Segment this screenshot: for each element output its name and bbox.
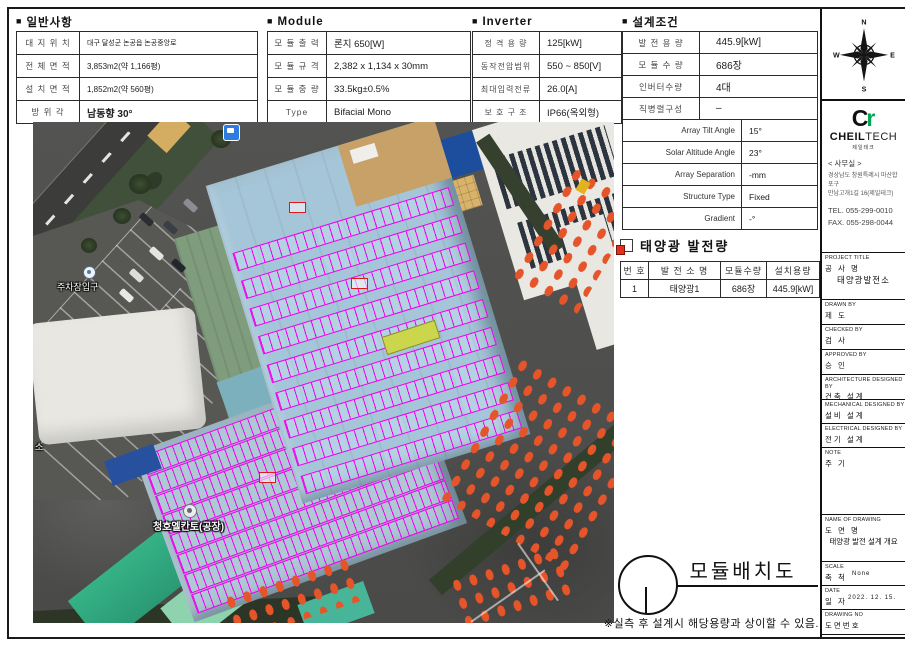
field-value: 남동향 30° bbox=[80, 101, 257, 123]
titleblock-electrical: ELECTRICAL DESIGNED BY전기 설계 bbox=[822, 423, 905, 447]
column-header: 설치용량 bbox=[767, 262, 819, 280]
titleblock-scale: SCALE축 척None bbox=[822, 561, 905, 585]
field-label: 모 듈 중 량 bbox=[268, 78, 327, 100]
roof-label-marker bbox=[259, 472, 276, 483]
table-row: 발 전 용 량445.9[kW] bbox=[623, 32, 817, 54]
table-row: Array Tilt Angle15° bbox=[623, 120, 817, 142]
row-caption-kr: 설비 설계 bbox=[825, 410, 905, 421]
field-value: 33.5kg±0.5% bbox=[327, 78, 470, 100]
table-row: 방 위 각남동향 30° bbox=[17, 101, 257, 123]
office-tel-line: TEL. 055-299-0010 bbox=[828, 205, 900, 217]
compass-w-label: W bbox=[832, 52, 839, 60]
compass-n-label: N bbox=[861, 19, 866, 27]
compass-rose-icon: N S W E bbox=[831, 15, 897, 93]
design-table-en: Array Tilt Angle15° Solar Altitude Angle… bbox=[622, 119, 818, 230]
field-value: 2,382 x 1,134 x 30mm bbox=[327, 55, 470, 77]
place-marker-icon bbox=[183, 504, 197, 518]
column-header: 발 전 소 명 bbox=[649, 262, 721, 280]
table-row: TypeBifacial Mono bbox=[268, 101, 470, 123]
office-fax-line: FAX. 055-298-0044 bbox=[828, 217, 900, 229]
row-caption-kr: 도면번호 bbox=[825, 620, 905, 631]
map-label-edge: 소 bbox=[35, 440, 43, 453]
car bbox=[183, 198, 199, 213]
table-row: 보 호 구 조IP66(옥외형) bbox=[473, 101, 621, 123]
table-row: 모 듈 중 량33.5kg±0.5% bbox=[268, 78, 470, 101]
company-box: Cr CHEILTECH 제일테크 < 사무실 > 경상남도 창원특례시 마산합… bbox=[822, 99, 905, 252]
row-caption-en: APPROVED BY bbox=[825, 352, 905, 359]
drawing-sheet: ■ 일반사항 대 지 위 치대구 달성군 논공읍 논공중앙로 전 체 면 적3,… bbox=[0, 0, 912, 646]
tree bbox=[129, 174, 151, 194]
section-design-header: ■ 설계조건 bbox=[622, 14, 818, 29]
title-block-rows: PROJECT TITLE공 사 명태양광발전소 DRAWN BY제 도 CHE… bbox=[822, 252, 905, 638]
field-label: 정 격 용 량 bbox=[473, 32, 540, 54]
table-row: Gradient-° bbox=[623, 208, 817, 229]
module-table: 모 듈 출 력론지 650[W] 모 듈 규 격2,382 x 1,134 x … bbox=[267, 31, 471, 124]
row-caption-en: ARCHITECTURE DESIGNED BY bbox=[825, 377, 905, 390]
brand-bold: CHEIL bbox=[830, 131, 866, 143]
title-symbol-divider bbox=[645, 587, 647, 613]
row-caption-kr: 공 사 명 bbox=[825, 263, 905, 274]
table-row: 인버터수량4대 bbox=[623, 76, 817, 98]
field-label: Structure Type bbox=[623, 186, 742, 207]
section-inverter: ■ Inverter 정 격 용 량125[kW] 동작전압범위550 ~ 85… bbox=[472, 14, 622, 124]
compass-s-label: S bbox=[861, 85, 866, 93]
sheet-frame: ■ 일반사항 대 지 위 치대구 달성군 논공읍 논공중앙로 전 체 면 적3,… bbox=[7, 7, 905, 639]
table-row: 전 체 면 적3,853m2(약 1,166평) bbox=[17, 55, 257, 78]
section-bullet-icon: ■ bbox=[267, 17, 272, 26]
field-label: 모 듈 출 력 bbox=[268, 32, 327, 54]
field-value: 26.0[A] bbox=[540, 78, 621, 100]
row-caption-kr: 검 사 bbox=[825, 335, 905, 346]
office-header: < 사무실 > bbox=[828, 158, 900, 169]
field-label: 모 듈 규 격 bbox=[268, 55, 327, 77]
footnote: ※실측 후 설계시 해당용량과 상이할 수 있음. bbox=[604, 615, 819, 631]
table-row: Solar Altitude Angle23° bbox=[623, 142, 817, 164]
field-label: 설 치 면 적 bbox=[17, 78, 80, 100]
field-label: 보 호 구 조 bbox=[473, 101, 540, 123]
row-caption-en: PROJECT TITLE bbox=[825, 255, 905, 262]
titleblock-note: NOTE주 기 bbox=[822, 447, 905, 514]
titleblock-checked-by: CHECKED BY검 사 bbox=[822, 324, 905, 349]
field-value: 686장 bbox=[700, 54, 817, 75]
column-header: 모듈수량 bbox=[721, 262, 767, 280]
satellite-layout-map: 주차장입구 청호엘칸토(공장) 소 bbox=[33, 122, 614, 623]
section-inverter-title: Inverter bbox=[482, 16, 532, 28]
office-phone: TEL. 055-299-0010 FAX. 055-298-0044 bbox=[828, 205, 900, 229]
field-value: IP66(옥외형) bbox=[540, 101, 621, 123]
inverter-table: 정 격 용 량125[kW] 동작전압범위550 ~ 850[V] 최대입력전류… bbox=[472, 31, 622, 124]
logo-mark: Cr bbox=[822, 107, 905, 130]
row-caption-en: DRAWING NO bbox=[825, 612, 905, 619]
row-content: 태양광발전소 bbox=[822, 274, 905, 286]
document-red-icon bbox=[620, 239, 633, 252]
titleblock-architecture: ARCHITECTURE DESIGNED BY건축 설계 bbox=[822, 374, 905, 399]
section-bullet-icon: ■ bbox=[622, 17, 627, 26]
titleblock-drawing-no: DRAWING NO도면번호 bbox=[822, 609, 905, 634]
generation-table: 번 호 발 전 소 명 모듈수량 설치용량 1 태양광1 686장 445.9[… bbox=[620, 261, 820, 298]
section-general-header: ■ 일반사항 bbox=[16, 14, 258, 29]
field-value: -mm bbox=[742, 164, 817, 185]
drawing-title: 모듈배치도 bbox=[667, 555, 819, 584]
table-row: 동작전압범위550 ~ 850[V] bbox=[473, 55, 621, 78]
general-table: 대 지 위 치대구 달성군 논공읍 논공중앙로 전 체 면 적3,853m2(약… bbox=[16, 31, 258, 124]
field-value: 론지 650[W] bbox=[327, 32, 470, 54]
titleblock-date: DATE일 자2022. 12. 15. bbox=[822, 585, 905, 609]
field-label: Array Separation bbox=[623, 164, 742, 185]
row-caption-en: ELECTRICAL DESIGNED BY bbox=[825, 426, 905, 433]
section-general: ■ 일반사항 대 지 위 치대구 달성군 논공읍 논공중앙로 전 체 면 적3,… bbox=[16, 14, 258, 124]
section-module-title: Module bbox=[277, 16, 323, 28]
company-logo: Cr CHEILTECH 제일테크 bbox=[822, 107, 905, 151]
table-cell: 태양광1 bbox=[649, 280, 721, 297]
field-value: Fixed bbox=[742, 186, 817, 207]
office-info: < 사무실 > 경상남도 창원특례시 마산합포구 만남고개1길 16(제일테크)… bbox=[822, 151, 905, 229]
field-label: Type bbox=[268, 101, 327, 123]
office-address-line1: 경상남도 창원특례시 마산합포구 bbox=[828, 172, 900, 190]
table-row: Array Separation-mm bbox=[623, 164, 817, 186]
field-label: 동작전압범위 bbox=[473, 55, 540, 77]
titleblock-mechanical: MECHANICAL DESIGNED BY설비 설계 bbox=[822, 399, 905, 423]
field-label: 발 전 용 량 bbox=[623, 32, 700, 53]
map-label-parking: 주차장입구 bbox=[57, 280, 98, 293]
table-row: 모 듈 규 격2,382 x 1,134 x 30mm bbox=[268, 55, 470, 78]
brand-light: TECH bbox=[865, 131, 897, 143]
generation-header: 태양광 발전량 bbox=[620, 236, 820, 255]
table-row: 모 듈 수 량686장 bbox=[623, 54, 817, 76]
brand-name: CHEILTECH bbox=[822, 131, 905, 143]
field-value: 445.9[kW] bbox=[700, 32, 817, 53]
table-cell: 1 bbox=[621, 280, 649, 297]
table-cell: 686장 bbox=[721, 280, 767, 297]
map-label-factory: 청호엘칸토(공장) bbox=[153, 518, 224, 533]
table-row: 설 치 면 적1,852m2(약 560평) bbox=[17, 78, 257, 101]
parking-sign-icon bbox=[83, 266, 96, 279]
logo-letter-r: r bbox=[866, 105, 875, 131]
section-bullet-icon: ■ bbox=[16, 17, 21, 26]
field-label: 인버터수량 bbox=[623, 76, 700, 97]
office-address-line2: 만남고개1길 16(제일테크) bbox=[828, 190, 900, 199]
field-value: -° bbox=[742, 208, 817, 229]
section-general-title: 일반사항 bbox=[26, 14, 72, 30]
row-caption-en: DATE bbox=[825, 588, 905, 595]
row-content: 2022. 12. 15. bbox=[848, 595, 903, 601]
section-module: ■ Module 모 듈 출 력론지 650[W] 모 듈 규 격2,382 x… bbox=[267, 14, 471, 124]
field-value: – bbox=[700, 98, 817, 119]
titleblock-drawing-name: NAME OF DRAWING도 면 명태양광 발전 설계 개요 bbox=[822, 514, 905, 561]
row-content: None bbox=[852, 571, 903, 577]
table-cell: 445.9[kW] bbox=[767, 280, 819, 297]
section-design: ■ 설계조건 발 전 용 량445.9[kW] 모 듈 수 량686장 인버터수… bbox=[622, 14, 818, 230]
section-module-header: ■ Module bbox=[267, 14, 471, 29]
field-label: Array Tilt Angle bbox=[623, 120, 742, 141]
titleblock-approved-by: APPROVED BY승 인 bbox=[822, 349, 905, 374]
white-building-roof bbox=[33, 307, 207, 446]
field-value: 대구 달성군 논공읍 논공중앙로 bbox=[80, 32, 257, 54]
table-row: Structure TypeFixed bbox=[623, 186, 817, 208]
field-value: Bifacial Mono bbox=[327, 101, 470, 123]
field-value: 15° bbox=[742, 120, 817, 141]
section-inverter-header: ■ Inverter bbox=[472, 14, 622, 29]
field-value: 125[kW] bbox=[540, 32, 621, 54]
row-caption-en: NAME OF DRAWING bbox=[825, 517, 905, 524]
design-table-kr: 발 전 용 량445.9[kW] 모 듈 수 량686장 인버터수량4대 직병렬… bbox=[622, 31, 818, 119]
field-label: Gradient bbox=[623, 208, 742, 229]
field-label: 직병렬구성 bbox=[623, 98, 700, 119]
tree bbox=[113, 208, 131, 224]
tree bbox=[81, 238, 97, 253]
roof-label-marker bbox=[289, 202, 306, 213]
compass-e-label: E bbox=[890, 52, 895, 60]
table-row: 모 듈 출 력론지 650[W] bbox=[268, 32, 470, 55]
field-value: 550 ~ 850[V] bbox=[540, 55, 621, 77]
field-value: 23° bbox=[742, 142, 817, 163]
field-label: 대 지 위 치 bbox=[17, 32, 80, 54]
field-label: Solar Altitude Angle bbox=[623, 142, 742, 163]
roof-label-marker bbox=[351, 278, 368, 289]
generation-title: 태양광 발전량 bbox=[640, 236, 729, 255]
title-block-sidebar: N S W E Cr C bbox=[820, 9, 905, 637]
field-label: 방 위 각 bbox=[17, 101, 80, 123]
table-row: 정 격 용 량125[kW] bbox=[473, 32, 621, 55]
section-generation: 태양광 발전량 번 호 발 전 소 명 모듈수량 설치용량 1 태양광1 686… bbox=[620, 236, 820, 298]
row-caption-kr: 전기 설계 bbox=[825, 434, 905, 445]
table-row: 직병렬구성– bbox=[623, 98, 817, 119]
field-label: 전 체 면 적 bbox=[17, 55, 80, 77]
row-content: 태양광 발전 설계 개요 bbox=[822, 536, 905, 547]
field-label: 모 듈 수 량 bbox=[623, 54, 700, 75]
row-caption-kr: 제 도 bbox=[825, 310, 905, 321]
row-caption-kr: 승 인 bbox=[825, 360, 905, 371]
table-row: 최대입력전류26.0[A] bbox=[473, 78, 621, 101]
bus-stop-icon bbox=[223, 124, 240, 141]
row-caption-kr: 주 기 bbox=[825, 458, 905, 469]
row-caption-kr: 도 면 명 bbox=[825, 525, 905, 536]
titleblock-drawn-by: DRAWN BY제 도 bbox=[822, 299, 905, 324]
row-caption-en: SCALE bbox=[825, 564, 905, 571]
row-caption-en: DRAWN BY bbox=[825, 302, 905, 309]
field-label: 최대입력전류 bbox=[473, 78, 540, 100]
table-row: 대 지 위 치대구 달성군 논공읍 논공중앙로 bbox=[17, 32, 257, 55]
brand-subtext: 제일테크 bbox=[822, 144, 905, 151]
titleblock-project-title: PROJECT TITLE공 사 명태양광발전소 bbox=[822, 252, 905, 299]
row-caption-en: CHECKED BY bbox=[825, 327, 905, 334]
section-design-title: 설계조건 bbox=[632, 14, 678, 30]
titleblock-empty bbox=[822, 634, 905, 638]
row-caption-en: NOTE bbox=[825, 450, 905, 457]
field-value: 4대 bbox=[700, 76, 817, 97]
column-header: 번 호 bbox=[621, 262, 649, 280]
row-caption-en: MECHANICAL DESIGNED BY bbox=[825, 402, 905, 409]
section-bullet-icon: ■ bbox=[472, 17, 477, 26]
field-value: 3,853m2(약 1,166평) bbox=[80, 55, 257, 77]
field-value: 1,852m2(약 560평) bbox=[80, 78, 257, 100]
compass-box: N S W E bbox=[822, 9, 905, 99]
